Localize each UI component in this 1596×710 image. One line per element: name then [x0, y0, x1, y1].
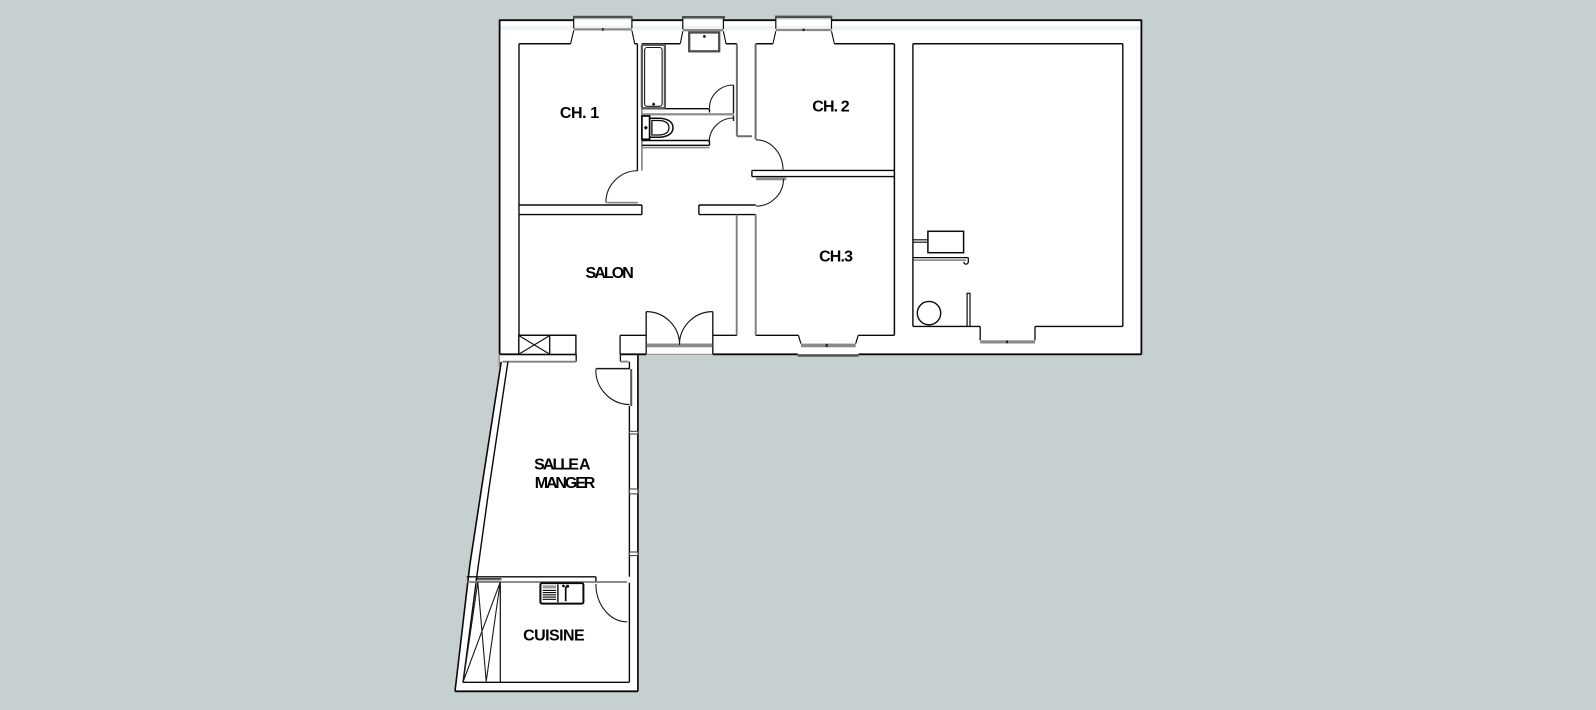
svg-text:CUISINE: CUISINE — [523, 627, 585, 644]
svg-text:SALLE A: SALLE A — [534, 457, 591, 474]
svg-text:MANGER: MANGER — [535, 475, 596, 492]
svg-text:SALON: SALON — [585, 265, 633, 282]
svg-text:CH. 1: CH. 1 — [560, 105, 599, 122]
svg-text:CH.3: CH.3 — [819, 249, 853, 266]
svg-text:CH. 2: CH. 2 — [812, 99, 849, 116]
